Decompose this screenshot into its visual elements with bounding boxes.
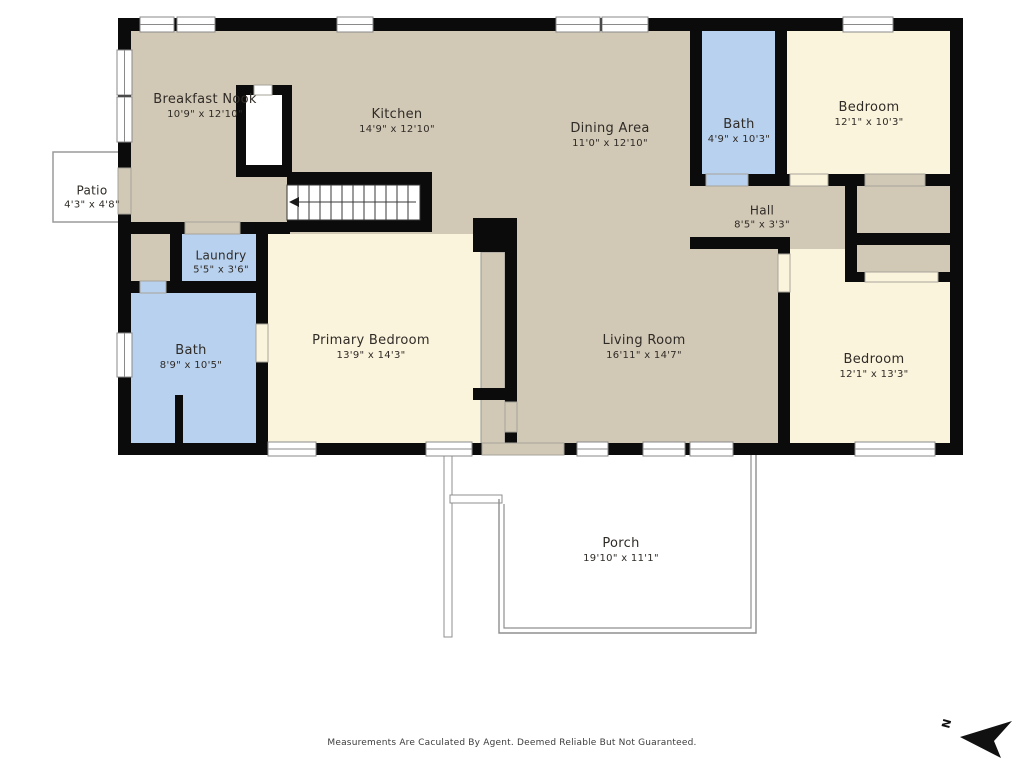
porch-outline [444, 455, 756, 637]
floorplan-page: N Breakfast Nook 10'9" x 12'10" Kitchen … [0, 0, 1024, 768]
primary-closet-strip [481, 252, 505, 443]
north-label: N [939, 718, 954, 730]
bedroom-upper-floor [787, 31, 950, 174]
stair-closet-interior [246, 95, 282, 165]
bath-left-floor [131, 293, 256, 443]
porch-rail [444, 455, 452, 637]
fireplace [473, 218, 517, 252]
primary-bedroom-floor [268, 234, 505, 443]
closet-lower-floor [857, 243, 950, 274]
patio-outline [53, 152, 120, 222]
disclaimer-text: Measurements Are Caculated By Agent. Dee… [0, 738, 1024, 748]
stairs [287, 185, 420, 220]
bath-upper-floor [702, 31, 775, 174]
floorplan-drawing: N [0, 0, 1024, 768]
laundry-floor [182, 234, 256, 281]
porch-rail-connector [450, 495, 502, 503]
